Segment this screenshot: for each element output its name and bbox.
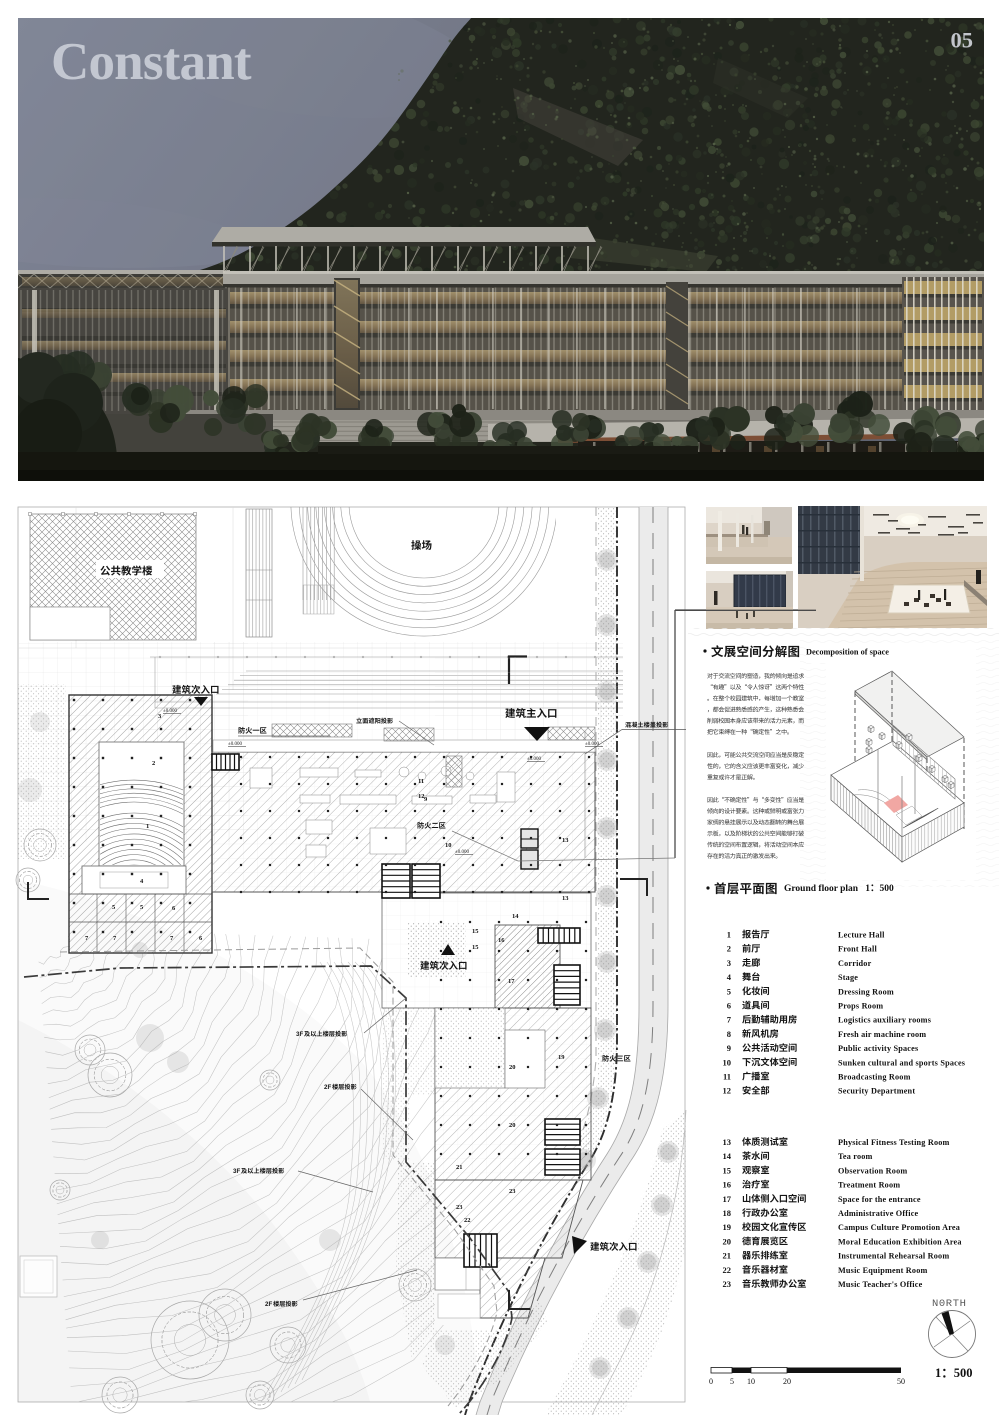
svg-text:23: 23 bbox=[723, 1279, 732, 1289]
svg-text:Stage: Stage bbox=[838, 973, 858, 982]
svg-text:10: 10 bbox=[445, 842, 452, 849]
svg-text:Security Department: Security Department bbox=[838, 1087, 915, 1096]
svg-text:2: 2 bbox=[727, 944, 731, 954]
svg-text:50: 50 bbox=[897, 1377, 905, 1386]
svg-text:N0RTH: N0RTH bbox=[932, 1298, 967, 1310]
svg-text:0: 0 bbox=[709, 1377, 713, 1386]
svg-text:Ground floor plan 1：500: Ground floor plan 1：500 bbox=[784, 884, 894, 894]
svg-text:1: 1 bbox=[727, 930, 731, 940]
svg-text:Treatment Room: Treatment Room bbox=[838, 1181, 900, 1190]
svg-text:8: 8 bbox=[727, 1029, 731, 1039]
svg-text:21: 21 bbox=[456, 1164, 463, 1171]
svg-text:3F: 3F bbox=[233, 1168, 240, 1175]
svg-text:20: 20 bbox=[509, 1064, 516, 1071]
svg-text:Music Equipment Room: Music Equipment Room bbox=[838, 1266, 928, 1275]
svg-text:5: 5 bbox=[727, 986, 731, 996]
svg-text:5: 5 bbox=[730, 1377, 734, 1386]
svg-text:12: 12 bbox=[723, 1086, 732, 1096]
svg-text:6: 6 bbox=[727, 1001, 731, 1011]
svg-text:10: 10 bbox=[723, 1057, 732, 1067]
svg-text:4: 4 bbox=[727, 972, 732, 982]
svg-text:Sunken cultural and sports Spa: Sunken cultural and sports Spaces bbox=[838, 1058, 965, 1067]
svg-text:11: 11 bbox=[418, 778, 424, 785]
svg-text:Decomposition of space: Decomposition of space bbox=[806, 648, 889, 657]
svg-text:19: 19 bbox=[723, 1222, 732, 1232]
svg-text:Corridor: Corridor bbox=[838, 959, 872, 968]
svg-text:7: 7 bbox=[727, 1015, 732, 1025]
svg-text:2F: 2F bbox=[265, 1301, 272, 1308]
svg-text:23: 23 bbox=[509, 1188, 516, 1195]
svg-text:20: 20 bbox=[783, 1377, 791, 1386]
svg-text:18: 18 bbox=[723, 1208, 732, 1218]
svg-text:3F: 3F bbox=[296, 1031, 303, 1038]
svg-text:15: 15 bbox=[472, 928, 479, 935]
svg-text:20: 20 bbox=[723, 1236, 732, 1246]
svg-text:13: 13 bbox=[723, 1137, 732, 1147]
svg-text:10: 10 bbox=[747, 1377, 755, 1386]
svg-text:19: 19 bbox=[558, 1054, 565, 1061]
svg-text:15: 15 bbox=[723, 1165, 732, 1175]
svg-text:20: 20 bbox=[509, 1122, 516, 1129]
svg-text:17: 17 bbox=[508, 978, 515, 985]
svg-text:Logistics auxiliary rooms: Logistics auxiliary rooms bbox=[838, 1016, 931, 1025]
svg-text:9: 9 bbox=[727, 1043, 731, 1053]
svg-text:Administrative Office: Administrative Office bbox=[838, 1209, 919, 1218]
svg-text:Broadcasting Room: Broadcasting Room bbox=[838, 1073, 911, 1082]
svg-text:2F: 2F bbox=[324, 1084, 331, 1091]
svg-text:16: 16 bbox=[498, 937, 505, 944]
svg-text:13: 13 bbox=[562, 837, 569, 844]
svg-text:Space for the entrance: Space for the entrance bbox=[838, 1195, 921, 1204]
svg-text:12: 12 bbox=[418, 793, 425, 800]
svg-text:14: 14 bbox=[723, 1151, 732, 1161]
svg-text:Physical Fitness Testing Room: Physical Fitness Testing Room bbox=[838, 1138, 950, 1147]
svg-text:Front Hall: Front Hall bbox=[838, 945, 877, 954]
svg-text:22: 22 bbox=[723, 1265, 732, 1275]
svg-text:3: 3 bbox=[727, 958, 731, 968]
svg-text:1：500: 1：500 bbox=[935, 1366, 973, 1380]
svg-text:Props Room: Props Room bbox=[838, 1002, 883, 1011]
svg-text:Dressing Room: Dressing Room bbox=[838, 987, 894, 996]
svg-text:2: 2 bbox=[152, 760, 155, 767]
svg-text:21: 21 bbox=[723, 1251, 732, 1261]
svg-text:17: 17 bbox=[723, 1194, 732, 1204]
svg-text:14: 14 bbox=[512, 913, 519, 920]
svg-text:Lecture Hall: Lecture Hall bbox=[838, 931, 885, 940]
svg-text:23: 23 bbox=[456, 1204, 463, 1211]
svg-text:Music Teacher's Office: Music Teacher's Office bbox=[838, 1280, 923, 1289]
svg-text:Campus Culture Promotion Area: Campus Culture Promotion Area bbox=[838, 1223, 960, 1232]
svg-text:11: 11 bbox=[723, 1072, 731, 1082]
svg-text:15: 15 bbox=[472, 944, 479, 951]
svg-text:Moral Education Exhibition Are: Moral Education Exhibition Area bbox=[838, 1237, 962, 1246]
svg-text:Public activity Spaces: Public activity Spaces bbox=[838, 1044, 918, 1053]
svg-text:1: 1 bbox=[146, 823, 149, 830]
svg-text:Tea room: Tea room bbox=[838, 1152, 873, 1161]
svg-text:16: 16 bbox=[723, 1180, 732, 1190]
svg-text:13: 13 bbox=[562, 895, 569, 902]
svg-text:Observation Room: Observation Room bbox=[838, 1166, 907, 1175]
svg-text:Fresh air machine room: Fresh air machine room bbox=[838, 1030, 926, 1039]
svg-text:22: 22 bbox=[464, 1217, 471, 1224]
svg-text:Instrumental Rehearsal Room: Instrumental Rehearsal Room bbox=[838, 1252, 949, 1261]
